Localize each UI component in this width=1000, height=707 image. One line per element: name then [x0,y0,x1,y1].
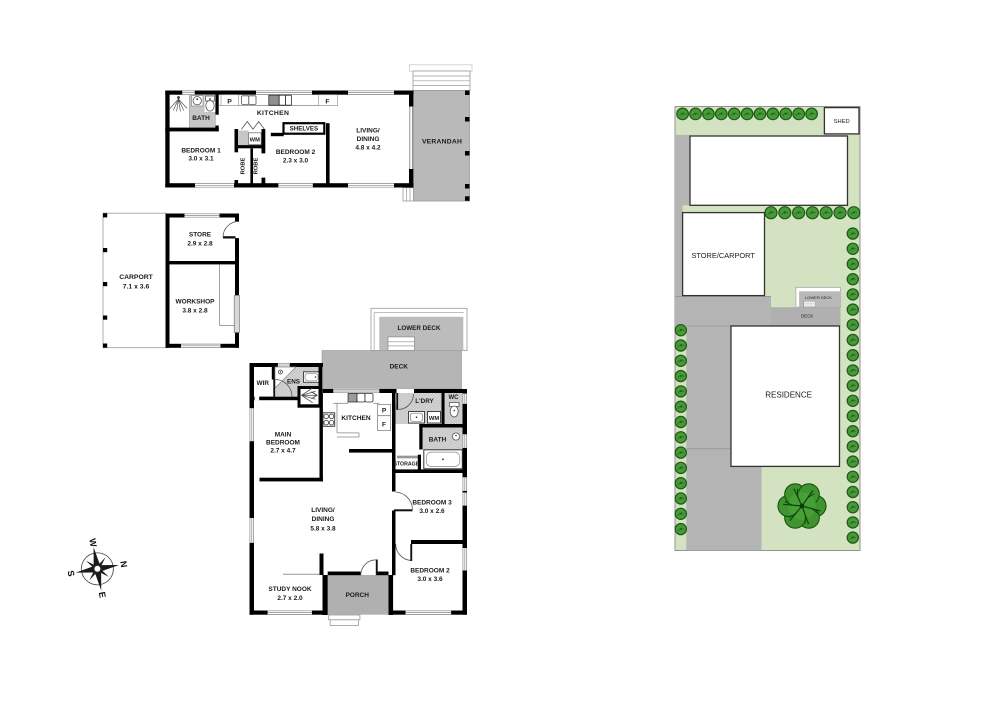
svg-text:KITCHEN: KITCHEN [257,110,289,117]
svg-text:ENS: ENS [287,379,300,386]
svg-text:3.0 x 3.6: 3.0 x 3.6 [417,576,443,583]
svg-text:ROBE: ROBE [254,157,260,174]
svg-text:2.7 x 2.0: 2.7 x 2.0 [277,595,303,602]
svg-text:BEDROOM 1: BEDROOM 1 [181,148,221,155]
svg-text:DECK: DECK [390,363,409,370]
svg-text:STORAGE: STORAGE [394,461,420,467]
svg-text:2.7 x 4.7: 2.7 x 4.7 [270,448,296,455]
svg-text:DINING: DINING [357,136,380,143]
svg-text:MAIN: MAIN [275,432,292,439]
svg-text:BATH: BATH [429,436,447,443]
svg-text:3.8 x 2.8: 3.8 x 2.8 [182,308,208,315]
svg-text:WM: WM [429,416,439,422]
svg-text:2.3 x 3.0: 2.3 x 3.0 [283,157,309,164]
svg-text:BEDROOM: BEDROOM [266,440,300,447]
svg-text:SHELVES: SHELVES [290,126,318,133]
svg-text:F: F [325,98,329,105]
svg-text:SHED: SHED [834,119,850,125]
svg-text:LIVING/: LIVING/ [311,507,335,514]
svg-text:STUDY NOOK: STUDY NOOK [268,586,312,593]
svg-text:KITCHEN: KITCHEN [341,415,371,422]
svg-text:BEDROOM 2: BEDROOM 2 [410,568,450,575]
svg-text:VERANDAH: VERANDAH [422,139,462,146]
svg-text:DINING: DINING [312,516,335,523]
svg-text:BEDROOM 3: BEDROOM 3 [412,500,452,507]
svg-text:BATH: BATH [192,115,210,122]
svg-text:LOWER DECK: LOWER DECK [805,295,832,300]
svg-text:WIR: WIR [257,380,270,387]
svg-text:L'DRY: L'DRY [415,398,434,405]
svg-text:PORCH: PORCH [345,592,369,599]
svg-text:LIVING/: LIVING/ [356,128,380,135]
svg-text:3.0 x 2.6: 3.0 x 2.6 [419,508,445,515]
svg-text:P: P [227,98,232,105]
svg-text:LOWER DECK: LOWER DECK [397,325,440,332]
svg-text:3.0 x 3.1: 3.0 x 3.1 [188,156,214,163]
svg-text:F: F [382,421,386,428]
svg-text:P: P [382,408,387,415]
svg-text:WC: WC [449,395,460,401]
svg-text:CARPORT: CARPORT [119,274,153,281]
svg-text:BEDROOM 2: BEDROOM 2 [276,149,316,156]
svg-text:ROBE: ROBE [240,157,246,174]
svg-text:2.9 x 2.8: 2.9 x 2.8 [187,241,213,248]
svg-text:STORE/CARPORT: STORE/CARPORT [692,251,756,260]
svg-text:DECK: DECK [801,314,813,319]
svg-text:WORKSHOP: WORKSHOP [176,299,216,306]
svg-text:4.8 x 4.2: 4.8 x 4.2 [355,145,381,152]
svg-text:5.8 x 3.8: 5.8 x 3.8 [310,525,336,532]
svg-text:7.1 x 3.6: 7.1 x 3.6 [123,284,150,291]
svg-text:WM: WM [250,137,260,143]
svg-text:STORE: STORE [189,232,212,239]
svg-text:RESIDENCE: RESIDENCE [765,391,812,400]
